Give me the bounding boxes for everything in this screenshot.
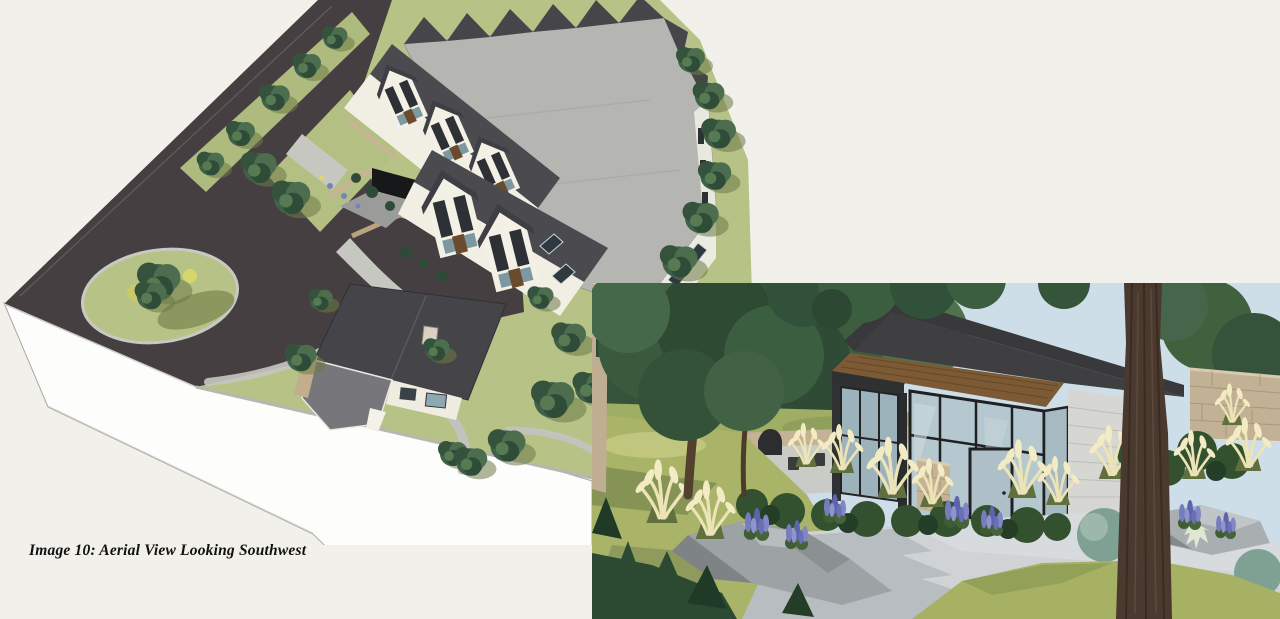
document-page: Image 10: Aerial View Looking Southwest	[0, 0, 1280, 619]
figure-caption: Image 10: Aerial View Looking Southwest	[29, 542, 306, 560]
clubhouse-rendering-svg	[592, 283, 1280, 619]
clubhouse-rendering-figure	[592, 283, 1280, 619]
